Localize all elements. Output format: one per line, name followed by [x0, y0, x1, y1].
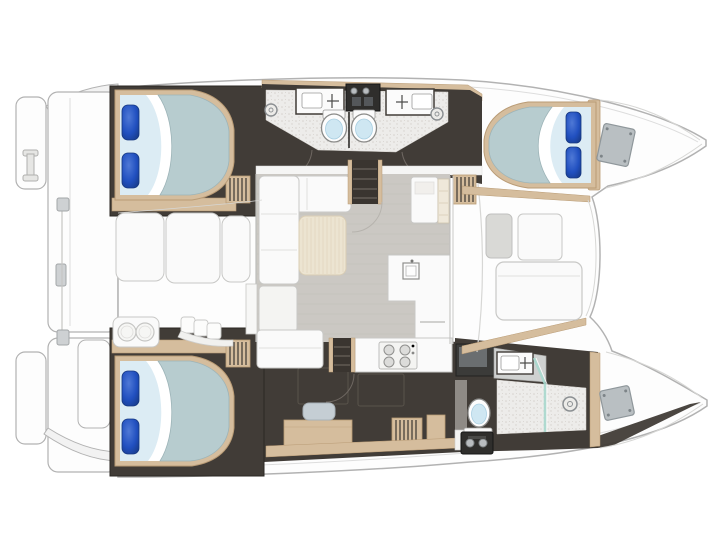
nav-station: [411, 177, 449, 223]
bow-hatch: [599, 385, 635, 421]
cabin-vent: [226, 176, 250, 203]
pillow: [566, 112, 581, 143]
cockpit-bench: [166, 213, 220, 283]
deck-cleat: [57, 198, 69, 211]
starboard-companionway-steps: [329, 338, 355, 372]
bow-bulkhead-trim: [590, 352, 600, 447]
aft-bench: [257, 330, 323, 368]
floor-plan-canvas: [0, 0, 720, 540]
lounge-cushion: [486, 214, 512, 258]
transom-step-inner: [78, 340, 110, 428]
salon: [246, 160, 482, 372]
port-aft-cabin: [110, 86, 264, 216]
starboard-transom: [16, 338, 118, 472]
starboard-aft-cabin: [110, 328, 264, 476]
cockpit-bench: [116, 213, 164, 281]
stool: [303, 403, 335, 420]
bathroom-sink: [497, 352, 533, 374]
cockpit-table: [113, 317, 159, 347]
pillow: [566, 147, 581, 178]
port-companionway-steps: [348, 160, 382, 204]
sunpad: [496, 262, 582, 320]
galley-faucet: [411, 260, 414, 263]
stove: [379, 342, 417, 369]
pillow: [122, 371, 139, 406]
toilet: [352, 110, 377, 142]
transom-latch: [56, 264, 66, 286]
shower-drain-icon: [563, 397, 577, 411]
pillow: [122, 153, 139, 188]
salon-table: [299, 216, 346, 275]
double-bed: [115, 356, 234, 466]
transom-step-port: [48, 92, 118, 332]
sliding-door: [246, 284, 257, 334]
toilet: [322, 110, 347, 142]
appliance-unit: [346, 84, 380, 111]
water-heater: [461, 432, 493, 454]
sofa-chaise: [259, 286, 297, 332]
double-bed: [484, 102, 596, 188]
shower-drain-icon: [431, 108, 443, 120]
swim-platform-starboard: [16, 352, 46, 444]
pillow: [122, 419, 139, 454]
pillow: [122, 105, 139, 140]
wet-wall-panel: [455, 380, 467, 430]
deck-cleat: [57, 330, 69, 345]
galley-aft-counter: [355, 338, 452, 372]
double-bed: [115, 90, 234, 200]
galley-sink: [403, 263, 419, 279]
lounge-cushion: [518, 214, 562, 260]
bathroom-sink: [386, 89, 434, 115]
cockpit-bench: [222, 216, 250, 282]
desk: [284, 420, 352, 446]
shower-drain-icon: [265, 104, 277, 116]
